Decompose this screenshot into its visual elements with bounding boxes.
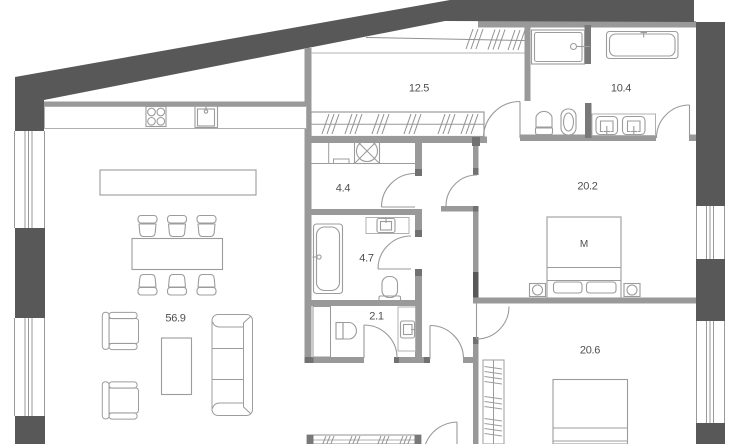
svg-text:2.1: 2.1 [369, 311, 384, 323]
svg-text:56.9: 56.9 [165, 313, 185, 325]
svg-text:4.7: 4.7 [359, 253, 374, 265]
svg-text:20.2: 20.2 [577, 181, 597, 193]
svg-text:12.5: 12.5 [409, 83, 429, 95]
svg-text:4.4: 4.4 [336, 183, 351, 195]
svg-text:M: M [580, 239, 588, 250]
svg-text:10.4: 10.4 [611, 83, 631, 95]
svg-text:20.6: 20.6 [580, 345, 600, 357]
